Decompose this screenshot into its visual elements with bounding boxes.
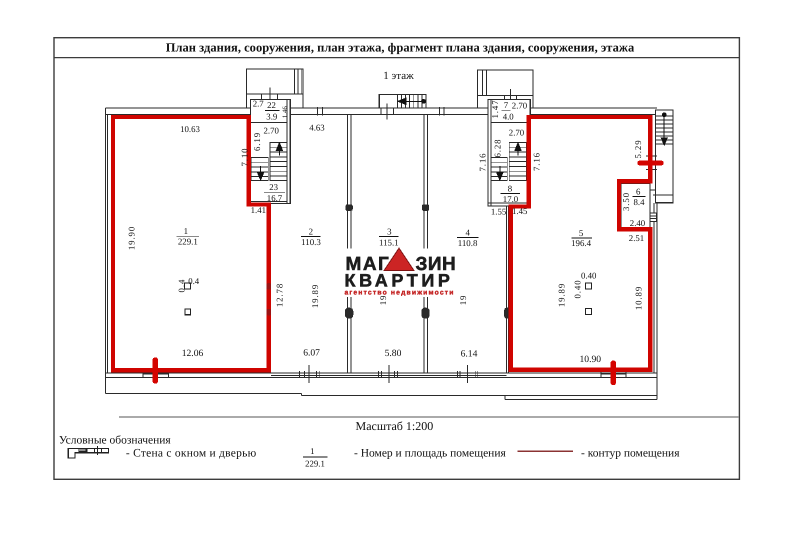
svg-text:План здания, сооружения, план: План здания, сооружения, план этажа, фра… xyxy=(166,40,635,54)
svg-text:4: 4 xyxy=(465,228,470,238)
svg-text:10.89: 10.89 xyxy=(634,286,644,310)
svg-text:7.16: 7.16 xyxy=(478,153,488,172)
svg-text:3.50: 3.50 xyxy=(621,192,631,211)
svg-text:6.28: 6.28 xyxy=(493,139,503,158)
svg-text:7.10: 7.10 xyxy=(239,148,249,167)
svg-text:0.4: 0.4 xyxy=(188,276,200,286)
svg-text:3.9: 3.9 xyxy=(266,111,278,121)
svg-text:19.89: 19.89 xyxy=(556,283,566,307)
svg-text:- Стена с окном и дверью: - Стена с окном и дверью xyxy=(126,448,257,460)
svg-text:19: 19 xyxy=(458,295,468,306)
svg-text:22: 22 xyxy=(267,100,276,110)
svg-text:- контур помещения: - контур помещения xyxy=(581,448,680,460)
svg-text:6.07: 6.07 xyxy=(303,347,320,358)
svg-text:1.47: 1.47 xyxy=(490,100,500,119)
svg-text:1 этаж: 1 этаж xyxy=(383,70,414,82)
svg-text:2: 2 xyxy=(309,227,313,237)
svg-text:12.06: 12.06 xyxy=(182,348,204,359)
svg-text:6.14: 6.14 xyxy=(461,349,478,360)
svg-text:196.4: 196.4 xyxy=(571,238,592,248)
svg-text:19.89: 19.89 xyxy=(310,284,320,308)
svg-text:10.90: 10.90 xyxy=(580,354,602,365)
svg-text:16.7: 16.7 xyxy=(267,193,283,203)
svg-text:19: 19 xyxy=(378,295,388,306)
svg-text:2.70: 2.70 xyxy=(512,101,528,111)
svg-text:1.45: 1.45 xyxy=(512,206,528,216)
svg-text:1: 1 xyxy=(310,446,314,456)
svg-text:17.0: 17.0 xyxy=(503,194,519,204)
svg-text:2.51: 2.51 xyxy=(629,233,644,243)
svg-text:3: 3 xyxy=(387,227,392,237)
svg-text:Масштаб 1:200: Масштаб 1:200 xyxy=(356,419,434,433)
svg-text:0.40: 0.40 xyxy=(581,271,597,281)
svg-text:КВАРТИР: КВАРТИР xyxy=(345,270,454,290)
svg-text:5: 5 xyxy=(579,228,584,238)
svg-text:110.8: 110.8 xyxy=(458,238,478,248)
svg-text:2.40: 2.40 xyxy=(630,218,646,228)
svg-text:агентство недвижимости: агентство недвижимости xyxy=(344,290,454,297)
svg-text:8: 8 xyxy=(508,184,513,194)
svg-text:- Номер и площадь помещения: - Номер и площадь помещения xyxy=(354,448,506,460)
svg-text:1.55: 1.55 xyxy=(491,207,507,217)
svg-text:5.80: 5.80 xyxy=(385,348,402,359)
svg-text:8.4: 8.4 xyxy=(634,197,646,207)
svg-text:115.1: 115.1 xyxy=(379,237,399,247)
svg-text:110.3: 110.3 xyxy=(301,237,321,247)
svg-text:12.78: 12.78 xyxy=(275,283,285,307)
svg-text:0.4: 0.4 xyxy=(177,279,187,293)
svg-text:10.63: 10.63 xyxy=(180,124,200,134)
svg-text:2.7: 2.7 xyxy=(253,99,265,109)
svg-text:229.1: 229.1 xyxy=(178,237,198,247)
svg-text:Условные обозначения: Условные обозначения xyxy=(59,434,172,446)
svg-text:229.1: 229.1 xyxy=(305,459,325,469)
svg-text:7: 7 xyxy=(504,100,509,110)
svg-text:1.46: 1.46 xyxy=(282,106,289,118)
svg-text:19.90: 19.90 xyxy=(127,226,137,250)
svg-text:2.70: 2.70 xyxy=(263,126,279,136)
svg-text:6.19: 6.19 xyxy=(252,132,262,151)
svg-text:1.41: 1.41 xyxy=(251,205,266,215)
svg-text:4.0: 4.0 xyxy=(503,111,515,121)
svg-text:7.16: 7.16 xyxy=(532,152,542,171)
svg-text:5.29: 5.29 xyxy=(633,140,643,159)
svg-text:1: 1 xyxy=(184,226,188,236)
svg-text:0.40: 0.40 xyxy=(573,280,583,299)
svg-text:4.63: 4.63 xyxy=(309,123,325,133)
svg-text:2.70: 2.70 xyxy=(509,128,525,138)
svg-text:23: 23 xyxy=(269,182,278,192)
svg-text:6: 6 xyxy=(636,187,641,197)
